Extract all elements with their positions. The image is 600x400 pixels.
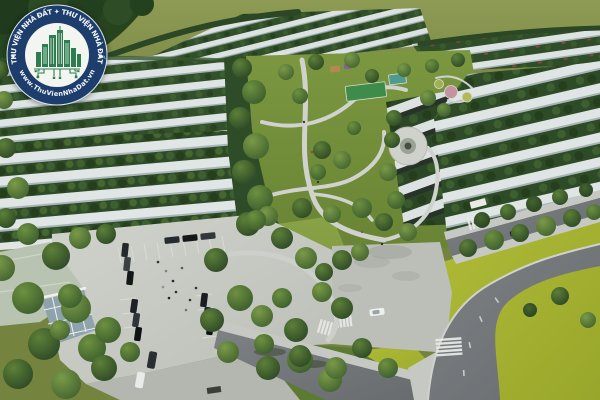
watermark-logo: THƯ VIỆN NHÀ ĐẤT ✦ THƯ VIỆN NHÀ ĐẤT www.…	[4, 2, 110, 108]
logo-separator-left: ◆	[11, 54, 15, 60]
aerial-render-canvas: THƯ VIỆN NHÀ ĐẤT ✦ THƯ VIỆN NHÀ ĐẤT www.…	[0, 0, 600, 400]
logo-separator-right: ◆	[99, 54, 103, 60]
